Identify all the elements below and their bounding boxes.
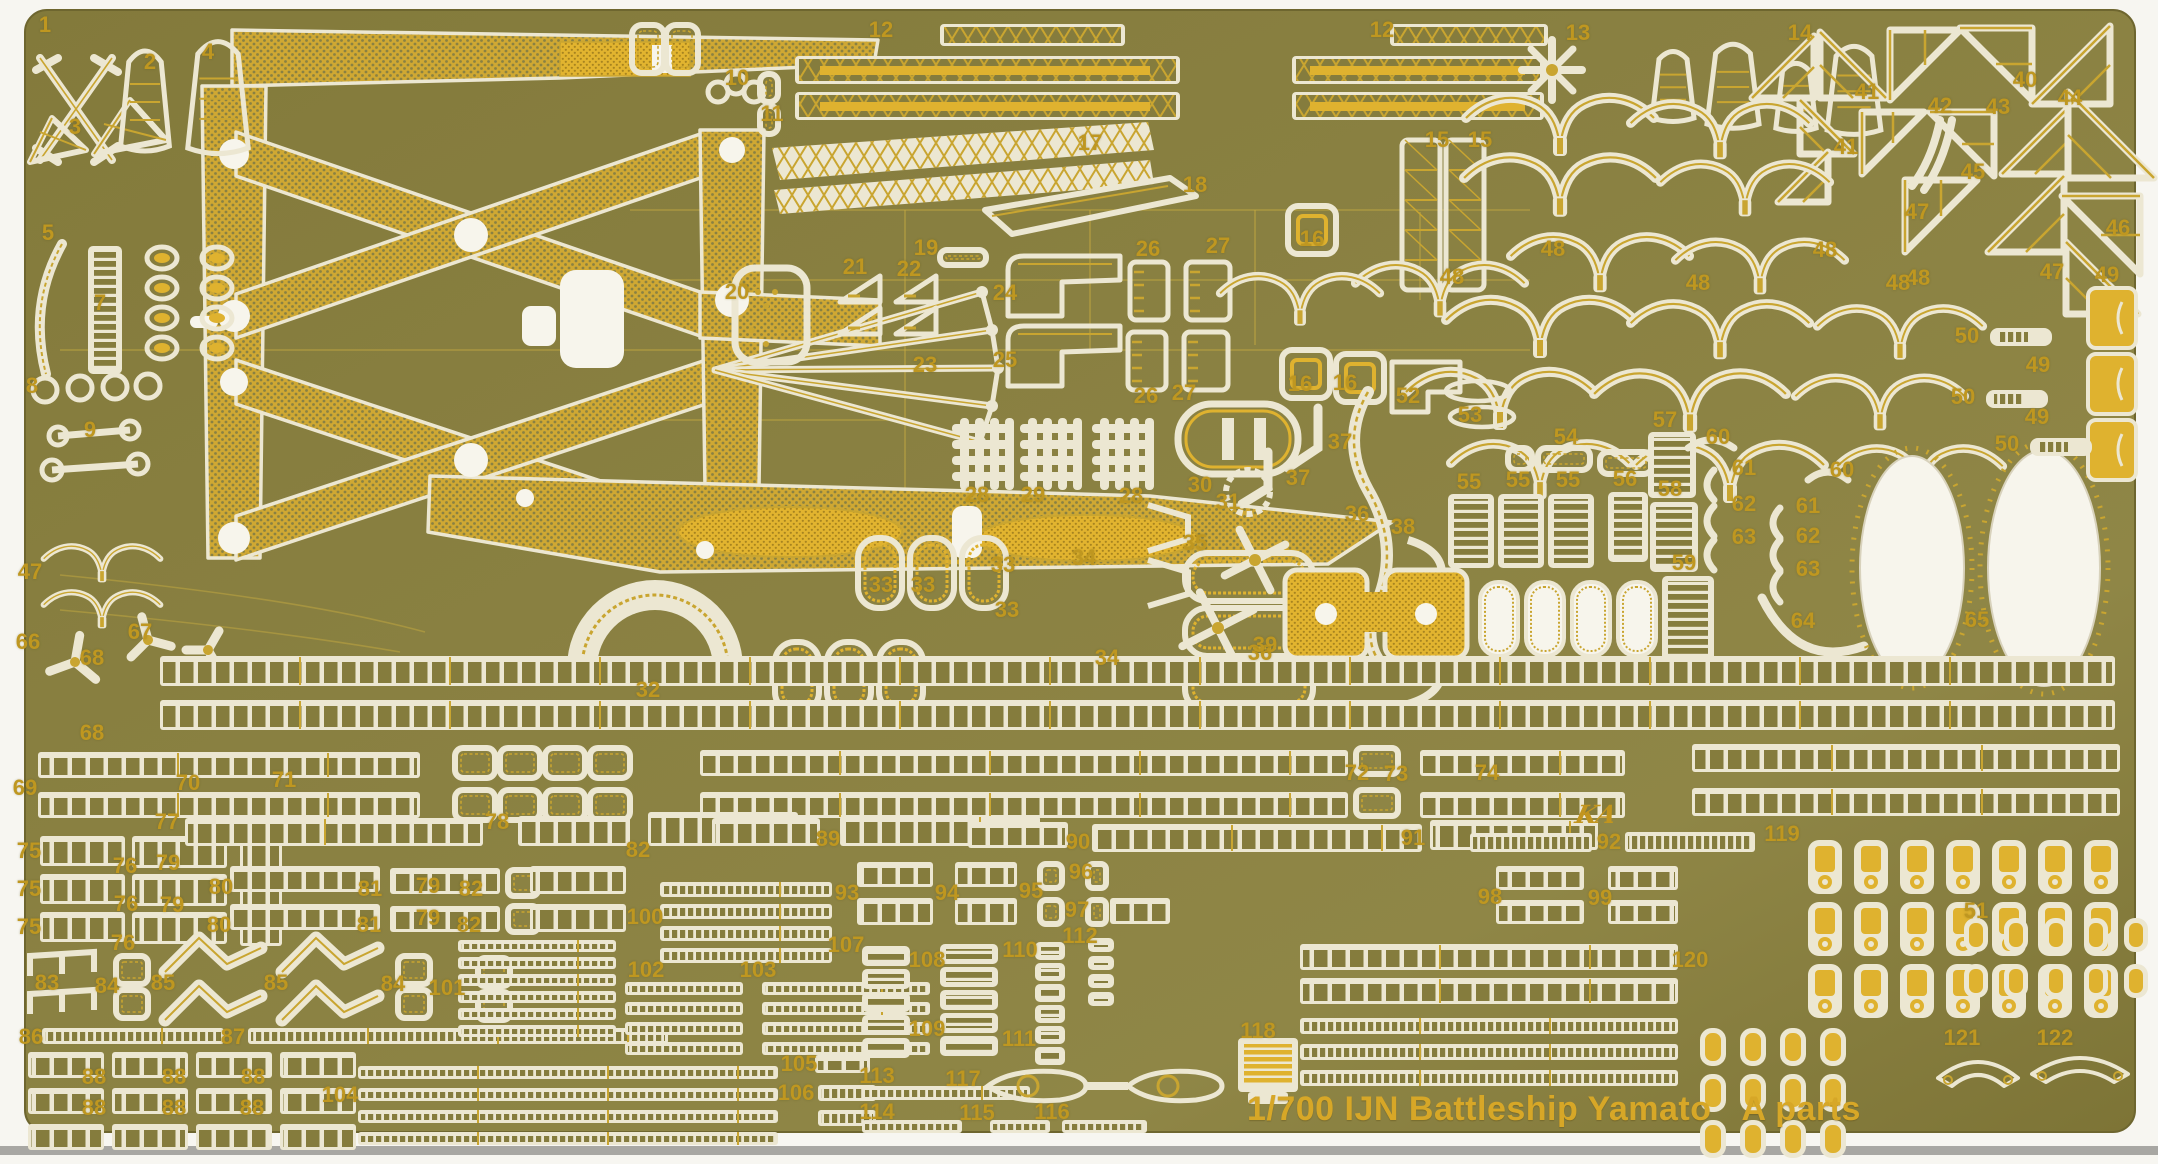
brand-logo: KA	[1572, 800, 1619, 829]
sheet-title: 1/700 IJN Battleship YamatoA parts	[1247, 1090, 1861, 1129]
photoetch-sheet-art	[0, 0, 2158, 1164]
photoetch-sheet-scan: 1234578910111212131415151616161718192021…	[0, 0, 2158, 1164]
sheet-title-text: 1/700 IJN Battleship Yamato	[1247, 1090, 1712, 1128]
parts-set-label: A parts	[1742, 1090, 1861, 1128]
